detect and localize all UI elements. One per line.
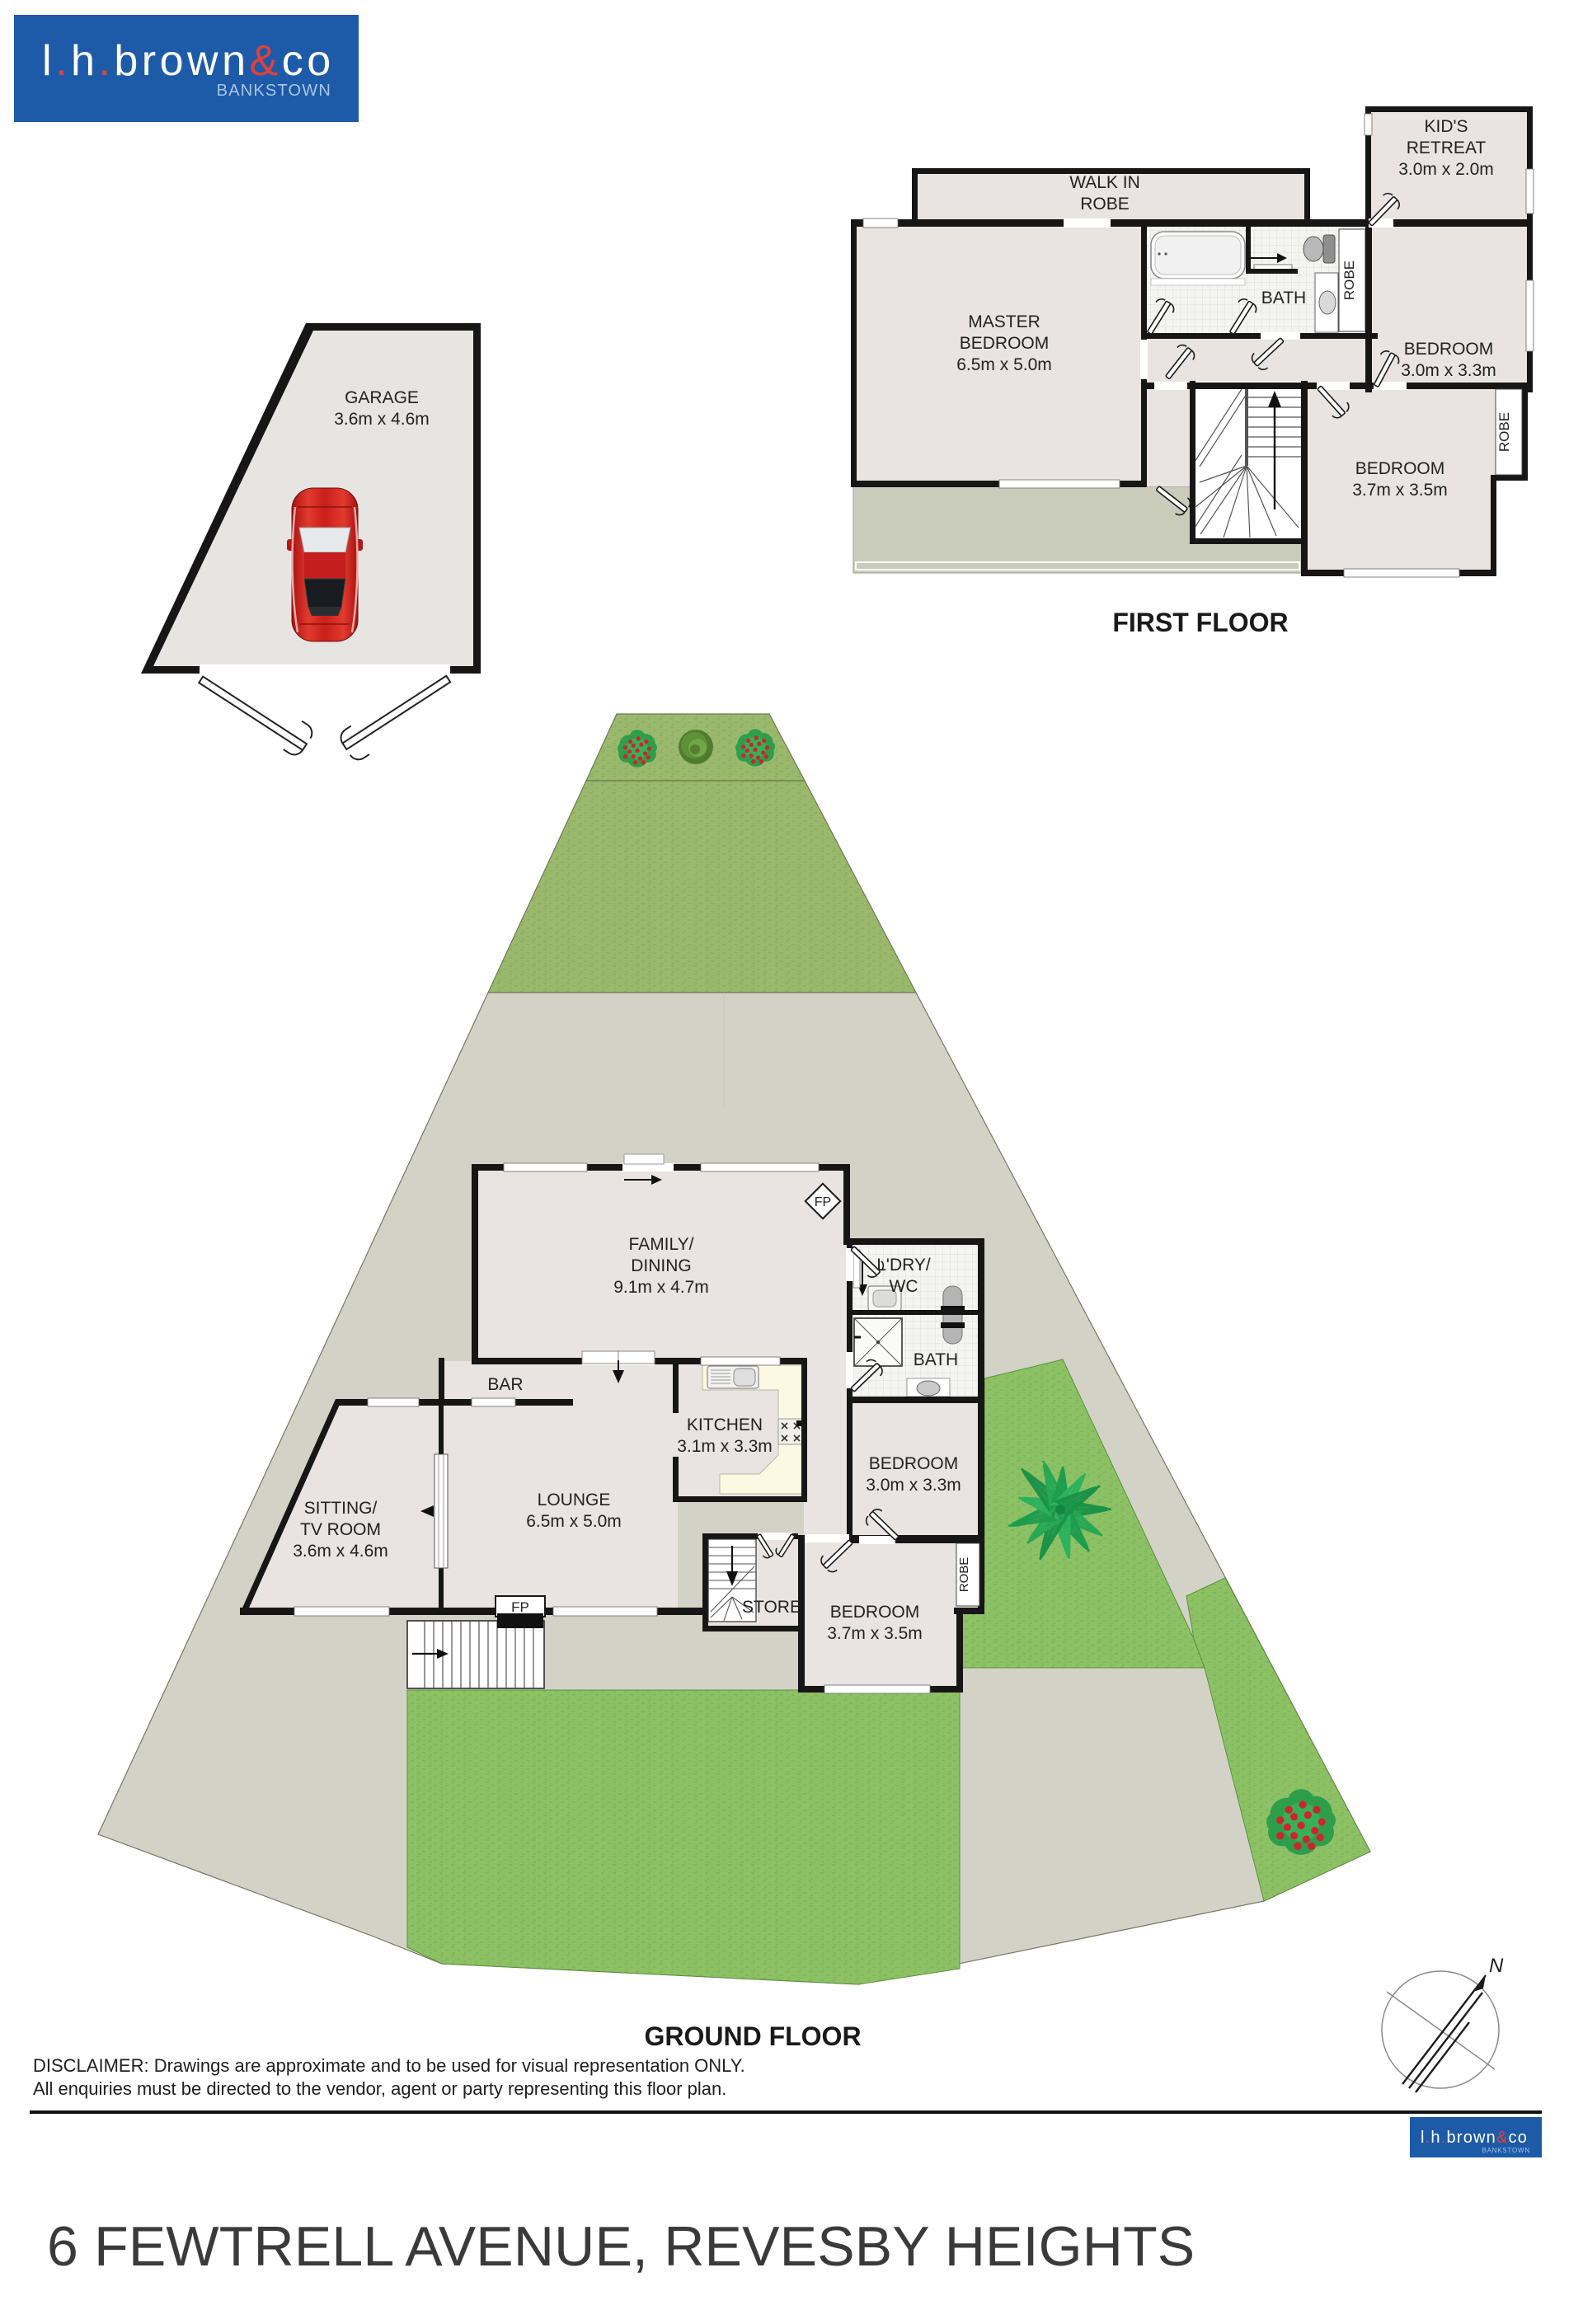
svg-text:3.1m x 3.3m: 3.1m x 3.3m	[677, 1437, 773, 1456]
svg-text:GARAGE: GARAGE	[345, 388, 419, 407]
svg-text:3.6m x 4.6m: 3.6m x 4.6m	[293, 1542, 388, 1561]
svg-text:KID'S: KID'S	[1424, 117, 1468, 136]
svg-text:FAMILY/: FAMILY/	[629, 1235, 694, 1254]
svg-text:BEDROOM: BEDROOM	[830, 1603, 920, 1622]
svg-text:3.0m x 2.0m: 3.0m x 2.0m	[1398, 160, 1494, 179]
svg-text:ROBE: ROBE	[1080, 195, 1130, 214]
svg-text:6 FEWTRELL AVENUE, REVESBY HEI: 6 FEWTRELL AVENUE, REVESBY HEIGHTS	[47, 2215, 1195, 2278]
svg-text:3.7m x 3.5m: 3.7m x 3.5m	[1352, 481, 1448, 500]
svg-text:l.h.brown&co: l.h.brown&co	[1421, 2129, 1528, 2147]
svg-text:BATH: BATH	[914, 1350, 958, 1369]
svg-text:BANKSTOWN: BANKSTOWN	[217, 82, 331, 100]
svg-text:BEDROOM: BEDROOM	[1355, 459, 1445, 478]
svg-text:BEDROOM: BEDROOM	[960, 334, 1050, 353]
svg-text:3.0m x 3.3m: 3.0m x 3.3m	[866, 1476, 961, 1495]
svg-text:ROBE: ROBE	[957, 1557, 971, 1593]
svg-text:WALK IN: WALK IN	[1069, 173, 1140, 192]
svg-text:WC: WC	[890, 1277, 918, 1296]
svg-text:6.5m x 5.0m: 6.5m x 5.0m	[526, 1512, 622, 1531]
svg-text:6.5m x 5.0m: 6.5m x 5.0m	[956, 355, 1052, 374]
svg-text:All enquiries must be directed: All enquiries must be directed to the ve…	[33, 2078, 726, 2099]
svg-text:STORE: STORE	[742, 1598, 801, 1617]
svg-text:3.7m x 3.5m: 3.7m x 3.5m	[827, 1624, 923, 1643]
svg-text:BANKSTOWN: BANKSTOWN	[1482, 2147, 1530, 2154]
svg-text:MASTER: MASTER	[968, 312, 1040, 331]
svg-text:FP: FP	[815, 1195, 831, 1209]
svg-text:N: N	[1489, 1955, 1504, 1977]
svg-text:SITTING/: SITTING/	[304, 1499, 378, 1518]
svg-text:9.1m x 4.7m: 9.1m x 4.7m	[613, 1278, 709, 1297]
svg-text:l.h.brown&co: l.h.brown&co	[42, 37, 335, 85]
svg-text:BEDROOM: BEDROOM	[1404, 340, 1494, 359]
svg-text:BAR: BAR	[487, 1375, 523, 1394]
svg-text:FP: FP	[511, 1599, 529, 1615]
svg-text:DISCLAIMER: Drawings are appro: DISCLAIMER: Drawings are approximate and…	[33, 2055, 745, 2076]
svg-text:FIRST FLOOR: FIRST FLOOR	[1112, 608, 1288, 637]
svg-text:3.6m x 4.6m: 3.6m x 4.6m	[334, 410, 430, 429]
svg-text:3.0m x 3.3m: 3.0m x 3.3m	[1401, 361, 1496, 380]
svg-text:ROBE: ROBE	[1496, 412, 1512, 452]
svg-text:GROUND FLOOR: GROUND FLOOR	[644, 2021, 861, 2051]
svg-text:TV ROOM: TV ROOM	[300, 1520, 381, 1539]
svg-text:L'DRY/: L'DRY/	[876, 1256, 931, 1275]
svg-text:KITCHEN: KITCHEN	[687, 1416, 763, 1434]
svg-text:ROBE: ROBE	[1341, 261, 1357, 300]
svg-text:BATH: BATH	[1261, 289, 1306, 308]
svg-text:LOUNGE: LOUNGE	[538, 1491, 611, 1509]
svg-text:RETREAT: RETREAT	[1407, 139, 1487, 157]
svg-text:DINING: DINING	[631, 1256, 692, 1275]
svg-text:BEDROOM: BEDROOM	[869, 1454, 959, 1473]
